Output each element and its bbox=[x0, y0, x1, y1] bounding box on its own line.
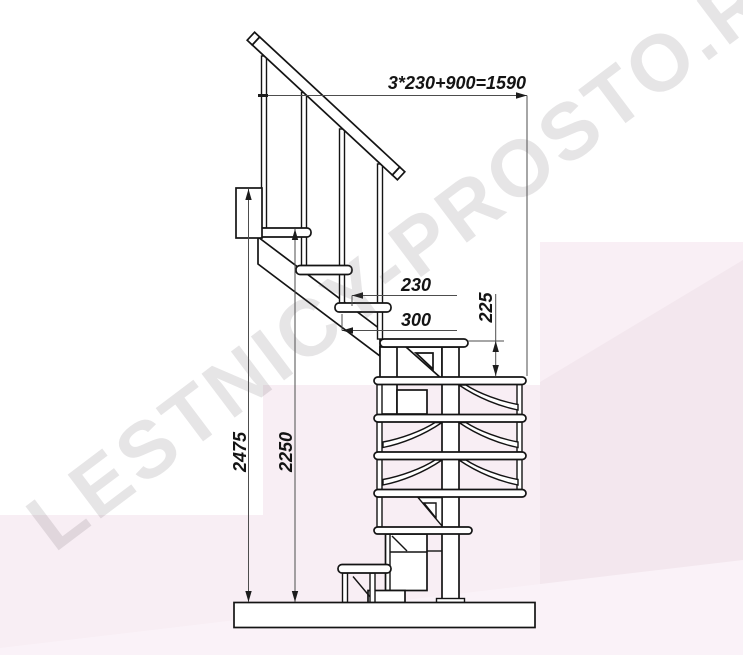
edge-post bbox=[377, 422, 382, 452]
staircase-drawing: 3*230+900=1590 230 300 225 2475 2250 bbox=[0, 0, 743, 655]
tread bbox=[257, 228, 311, 237]
winder-tread bbox=[374, 377, 526, 385]
dimension-label-tread-run: 230 bbox=[400, 275, 431, 295]
tread-leg bbox=[370, 573, 375, 603]
tread-leg bbox=[343, 573, 348, 603]
edge-post bbox=[377, 460, 382, 490]
landing-tread bbox=[380, 339, 468, 347]
edge-post bbox=[377, 497, 382, 527]
baluster bbox=[340, 129, 345, 303]
landing-support-box bbox=[397, 390, 427, 414]
first-tread bbox=[338, 565, 391, 574]
lower-tread bbox=[374, 527, 472, 534]
dimension-label-total-height: 2475 bbox=[230, 431, 250, 473]
dimension-label-top-run: 3*230+900=1590 bbox=[388, 73, 526, 93]
dimension-label-step-depth: 300 bbox=[401, 310, 431, 330]
box-step bbox=[386, 534, 428, 591]
winder-tread bbox=[374, 490, 526, 498]
winder-tread bbox=[374, 415, 526, 423]
edge-post bbox=[377, 385, 382, 415]
blueprint-page: 3*230+900=1590 230 300 225 2475 2250 LES… bbox=[0, 0, 743, 655]
tread bbox=[296, 266, 352, 275]
winder-tread bbox=[374, 452, 526, 460]
floor-slab bbox=[234, 603, 535, 628]
baluster bbox=[302, 93, 307, 266]
dimension-label-upper-tread-height: 2250 bbox=[276, 432, 296, 473]
tread bbox=[335, 303, 391, 312]
dimension-label-riser-height: 225 bbox=[476, 292, 496, 324]
